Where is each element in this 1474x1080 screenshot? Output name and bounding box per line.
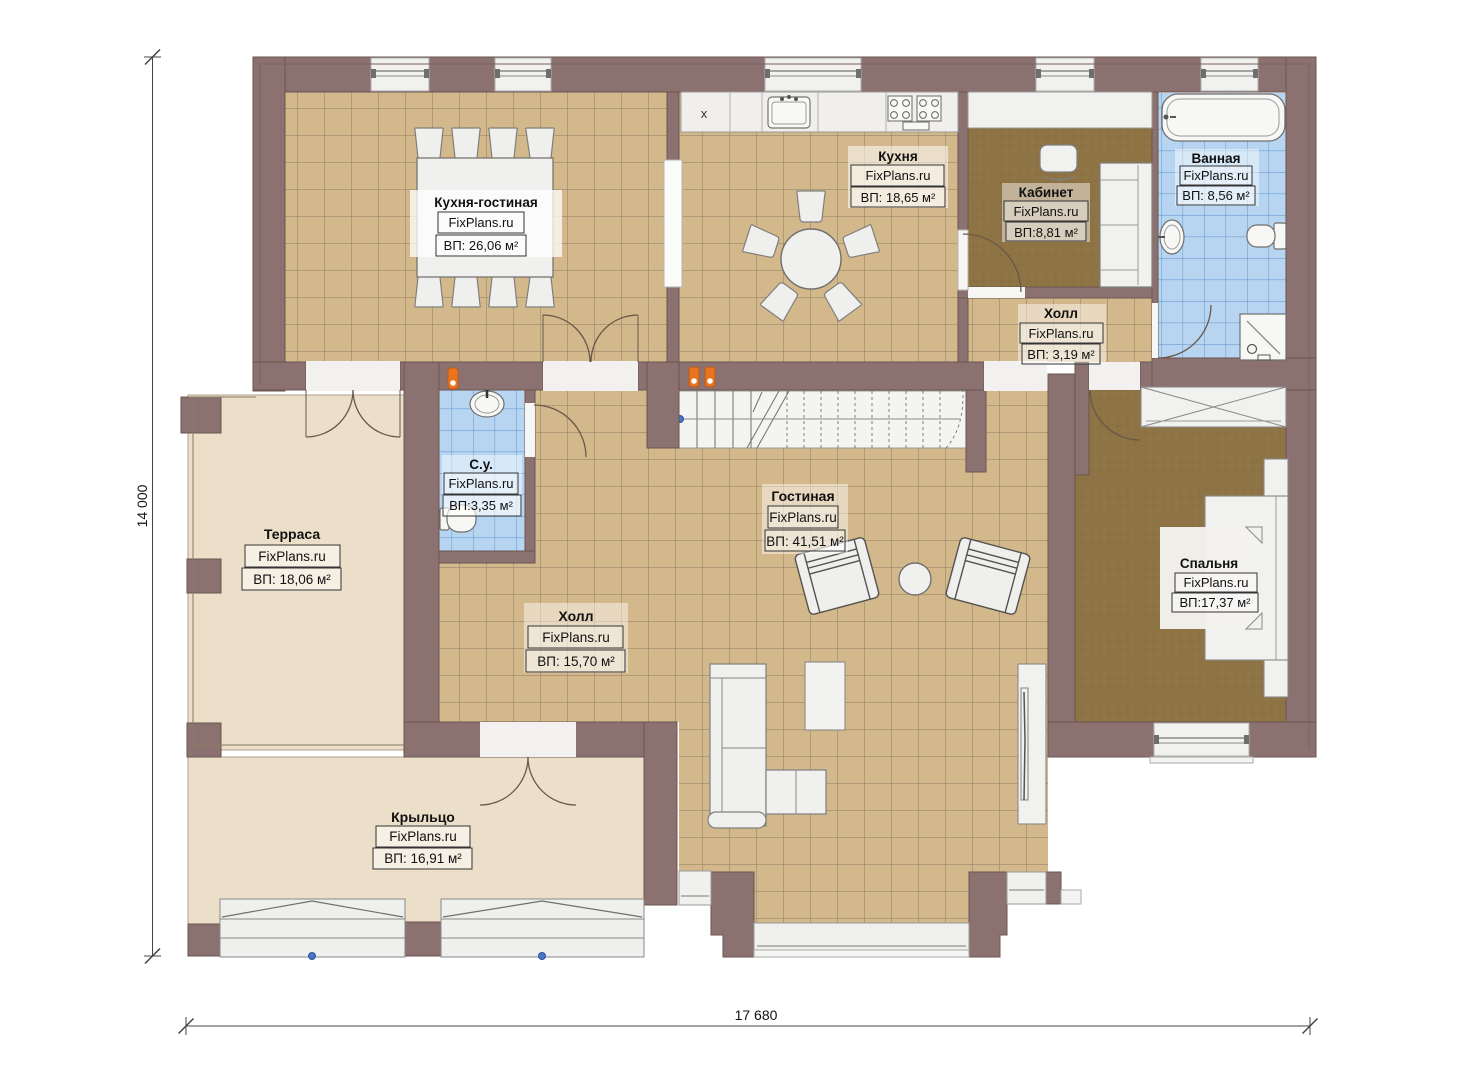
svg-text:Кабинет: Кабинет [1019,185,1074,200]
svg-text:FixPlans.ru: FixPlans.ru [1013,204,1078,219]
svg-text:Ванная: Ванная [1192,151,1241,166]
svg-text:FixPlans.ru: FixPlans.ru [258,549,326,564]
svg-text:С.у.: С.у. [469,457,493,472]
svg-text:FixPlans.ru: FixPlans.ru [448,215,513,230]
svg-text:ВП: 3,19 м²: ВП: 3,19 м² [1027,347,1095,362]
svg-text:FixPlans.ru: FixPlans.ru [1183,575,1248,590]
svg-text:ВП: 18,06 м²: ВП: 18,06 м² [253,572,331,587]
svg-text:ВП:8,81 м²: ВП:8,81 м² [1014,225,1078,240]
svg-text:Спальня: Спальня [1180,556,1238,571]
svg-text:ВП: 26,06 м²: ВП: 26,06 м² [444,238,519,253]
svg-text:FixPlans.ru: FixPlans.ru [448,476,513,491]
svg-text:Гостиная: Гостиная [771,488,834,504]
svg-text:FixPlans.ru: FixPlans.ru [542,630,610,645]
svg-text:x: x [701,106,708,121]
svg-text:Кухня-гостиная: Кухня-гостиная [434,195,537,210]
svg-text:14 000: 14 000 [134,484,150,527]
svg-text:ВП: 15,70 м²: ВП: 15,70 м² [537,654,615,669]
svg-text:Терраса: Терраса [264,526,320,542]
svg-text:ВП: 18,65 м²: ВП: 18,65 м² [861,190,936,205]
svg-text:FixPlans.ru: FixPlans.ru [769,510,837,525]
svg-text:FixPlans.ru: FixPlans.ru [1183,168,1248,183]
svg-text:ВП: 41,51 м²: ВП: 41,51 м² [766,534,844,549]
svg-text:FixPlans.ru: FixPlans.ru [389,829,457,844]
svg-text:FixPlans.ru: FixPlans.ru [865,168,930,183]
svg-text:ВП: 16,91 м²: ВП: 16,91 м² [384,851,462,866]
svg-text:Крыльцо: Крыльцо [391,809,455,825]
svg-text:Холл: Холл [1044,306,1078,321]
svg-text:17 680: 17 680 [735,1007,778,1023]
svg-text:Холл: Холл [558,608,593,624]
svg-text:ВП: 8,56 м²: ВП: 8,56 м² [1182,188,1250,203]
svg-text:Кухня: Кухня [878,149,917,164]
svg-text:FixPlans.ru: FixPlans.ru [1028,326,1093,341]
svg-text:ВП:3,35 м²: ВП:3,35 м² [449,498,513,513]
svg-text:ВП:17,37 м²: ВП:17,37 м² [1179,595,1251,610]
